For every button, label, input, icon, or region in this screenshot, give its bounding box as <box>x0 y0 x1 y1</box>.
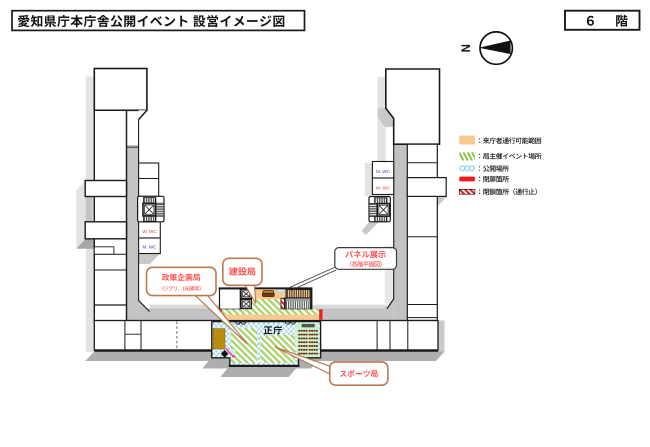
svg-text:M. WC: M. WC <box>142 245 157 250</box>
svg-text:M. WC: M. WC <box>376 169 391 174</box>
svg-text:W. WC: W. WC <box>142 229 157 234</box>
svg-text:N: N <box>461 44 473 52</box>
svg-text:W. WC: W. WC <box>376 186 391 191</box>
